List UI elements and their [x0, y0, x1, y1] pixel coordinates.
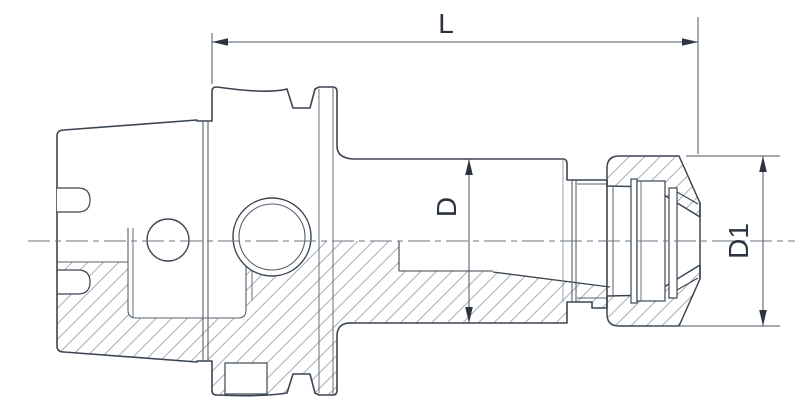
technical-drawing-page: L D D1: [0, 0, 812, 417]
arrowhead-right: [682, 38, 698, 46]
drive-slot-hole: [147, 219, 189, 261]
technical-drawing-canvas: L D D1: [0, 0, 812, 417]
ball-track-outer: [233, 198, 311, 276]
shank-bore-cavity: [57, 241, 128, 262]
drive-key-slot: [225, 363, 267, 394]
arrowhead-top: [759, 156, 767, 172]
arrowhead-left: [212, 38, 228, 46]
dimension-D-label: D: [431, 197, 462, 217]
shank-hollow-cavity: [128, 241, 246, 318]
dimension-L-label: L: [438, 8, 454, 39]
dimension-D1-label: D1: [723, 223, 754, 259]
grip-recess-lower: [57, 270, 90, 294]
arrowhead-bottom: [759, 310, 767, 326]
collet-groove-ring: [669, 188, 677, 298]
grip-recess-upper: [57, 188, 90, 212]
